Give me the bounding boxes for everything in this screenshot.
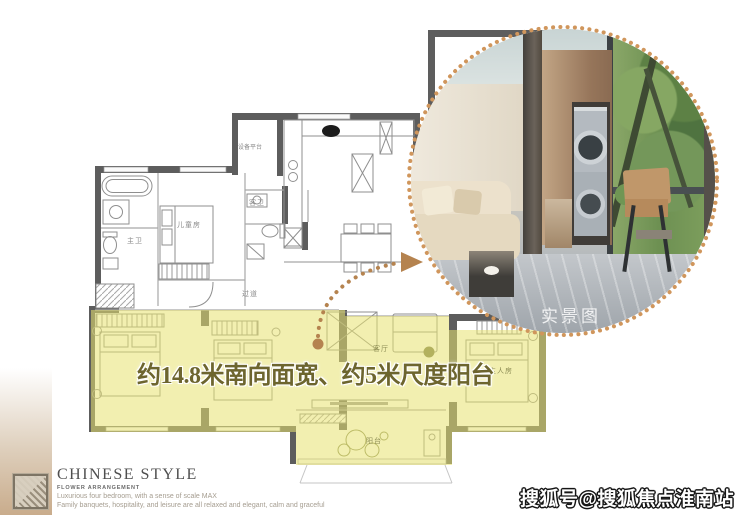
photo-washer bbox=[574, 107, 607, 175]
photo-cabinet bbox=[545, 199, 572, 248]
photo-caption: 实景图 bbox=[541, 302, 601, 327]
photo-frame-column bbox=[523, 29, 541, 260]
room-label-guest-bath: 客卫 bbox=[249, 198, 265, 208]
room-label-master-bath: 主卫 bbox=[127, 236, 143, 246]
brand-description-line: Luxurious four bedroom, with a sense of … bbox=[57, 493, 217, 500]
room-label-equipment-platform: 设备平台 bbox=[238, 142, 262, 151]
brand-title: CHINESE STYLE bbox=[57, 466, 198, 484]
photo-window-frame bbox=[704, 29, 715, 248]
brand-logo-icon bbox=[13, 474, 48, 509]
photo-side-table bbox=[636, 230, 672, 239]
watermark: 搜狐号@搜狐焦点淮南站 bbox=[520, 484, 734, 511]
photo-sofa-pillow bbox=[421, 185, 455, 216]
page: 设备平台 主卫 儿童房 客卫 过道 客厅 主人房 阳台 bbox=[0, 0, 740, 515]
room-label-corridor: 过道 bbox=[242, 289, 258, 299]
photo-inset bbox=[411, 29, 715, 333]
room-label-balcony: 阳台 bbox=[366, 436, 382, 446]
brand-subtitle: FLOWER ARRANGEMENT bbox=[57, 485, 140, 491]
photo-dryer bbox=[574, 172, 607, 236]
headline-banner: 约14.8米南向面宽、约5米尺度阳台 bbox=[137, 355, 494, 390]
brand-description-line: Family banquets, hospitality, and leisur… bbox=[57, 502, 325, 509]
room-label-living-room: 客厅 bbox=[373, 344, 389, 354]
photo-sofa-pillow bbox=[452, 189, 482, 216]
room-label-kids-room: 儿童房 bbox=[177, 220, 201, 230]
